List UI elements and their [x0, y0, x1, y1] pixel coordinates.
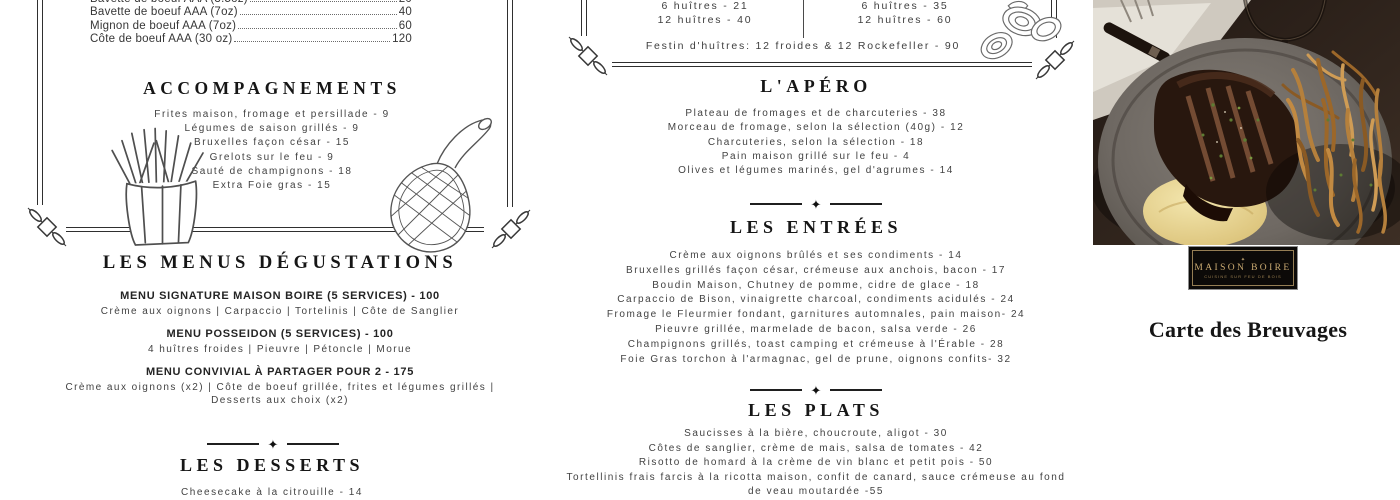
diamond-icon: ✦ — [268, 438, 279, 451]
dotted-leader — [240, 14, 397, 15]
logo-inner-border: ✦ MAISON BOIRE CUISINE SUR FEU DE BOIS — [1192, 250, 1294, 286]
dotted-leader — [250, 1, 397, 2]
frame-left-line — [37, 0, 43, 205]
section-divider: ✦ — [646, 383, 986, 397]
menu-item: Pieuvre grillée, marmelade de bacon, sal… — [560, 323, 1072, 338]
menu-entry-detail: 4 huîtres froides | Pieuvre | Pétoncle |… — [46, 343, 514, 357]
section-divider: ✦ — [646, 197, 986, 211]
menu-item: Olives et légumes marinés, gel d'agrumes… — [566, 164, 1066, 178]
desserts-items: Cheesecake à la citrouille - 14 — [62, 486, 482, 500]
diamond-icon: ✦ — [811, 198, 822, 211]
menu-item: Tortellinis frais farcis à la ricotta ma… — [563, 471, 1069, 500]
menu-item: Champignons grillés, toast camping et cr… — [560, 338, 1072, 353]
menu-item: Plateau de fromages et de charcuteries -… — [566, 107, 1066, 121]
beef-cuts-list: Bavette de boeuf AAA (3.5oz) 20 Bavette … — [90, 0, 412, 47]
festin-huitres-line: Festin d'huîtres: 12 froides & 12 Rockef… — [593, 40, 1013, 52]
divider-line — [287, 443, 339, 445]
beef-cut-row: Côte de boeuf AAA (30 oz) 120 — [90, 33, 412, 46]
menu-entry: MENU POSSEIDON (5 SERVICES) - 100 4 huît… — [46, 328, 514, 357]
divider-line — [830, 203, 882, 205]
menu-entry-detail: Crème aux oignons (x2) | Côte de boeuf g… — [46, 381, 514, 409]
menu-item: Morceau de fromage, selon la sélection (… — [566, 121, 1066, 135]
menu-item: Pain maison grillé sur le feu - 4 — [566, 150, 1066, 164]
beef-cut-name: Mignon de boeuf AAA (7oz) — [90, 20, 236, 33]
divider-line — [750, 203, 802, 205]
section-divider: ✦ — [103, 437, 443, 451]
beef-cut-name: Côte de boeuf AAA (30 oz) — [90, 33, 232, 46]
plats-items: Saucisses à la bière, choucroute, aligot… — [563, 427, 1069, 500]
menu-entry-detail: Crème aux oignons | Carpaccio | Tortelin… — [46, 305, 514, 319]
menu-entry: MENU SIGNATURE MAISON BOIRE (5 SERVICES)… — [46, 290, 514, 319]
dotted-leader — [234, 41, 390, 42]
section-title-apero: L'APÉRO — [616, 77, 1016, 97]
section-title-desserts: LES DESSERTS — [72, 456, 472, 476]
dotted-leader — [238, 28, 396, 29]
menu-item: 12 huîtres - 40 — [615, 14, 795, 28]
divider-line — [830, 389, 882, 391]
oysters-illustration-icon — [970, 0, 1065, 66]
menu-item: 6 huîtres - 21 — [615, 0, 795, 14]
entrees-items: Crème aux oignons brûlés et ses condimen… — [560, 249, 1072, 367]
beef-cut-row: Bavette de boeuf AAA (7oz) 40 — [90, 6, 412, 19]
beef-cut-row: Mignon de boeuf AAA (7oz) 60 — [90, 20, 412, 33]
beef-cut-price: 120 — [392, 33, 412, 46]
oyster-price-column-froides: 6 huîtres - 2112 huîtres - 40 — [615, 0, 795, 27]
menu-entry-heading: MENU POSSEIDON (5 SERVICES) - 100 — [46, 328, 514, 340]
section-title-plats: LES PLATS — [616, 401, 1016, 421]
frame-bottom-line — [612, 62, 1032, 67]
divider-line — [750, 389, 802, 391]
menu-item: Carpaccio de Bison, vinaigrette charcoal… — [560, 293, 1072, 308]
menu-item: Cheesecake à la citrouille - 14 — [62, 486, 482, 500]
menu-item: Foie Gras torchon à l'armagnac, gel de p… — [560, 353, 1072, 368]
menu-item: 6 huîtres - 35 — [815, 0, 995, 14]
frame-corner-ornament-icon — [25, 205, 69, 249]
beef-cut-price: 40 — [399, 6, 412, 19]
menu-item: Crème aux oignons brûlés et ses condimen… — [560, 249, 1072, 264]
menu-item: Côtes de sanglier, crème de mais, salsa … — [563, 442, 1069, 457]
tomahawk-steak-illustration-icon — [375, 108, 510, 258]
logo-ornament-icon: ✦ — [1241, 258, 1245, 262]
section-title-menus-degustations: LES MENUS DÉGUSTATIONS — [80, 253, 480, 273]
fries-illustration-icon — [90, 126, 235, 261]
menu-item: Fromage le Fleurmier fondant, garnitures… — [560, 308, 1072, 323]
apero-items: Plateau de fromages et de charcuteries -… — [566, 107, 1066, 178]
menu-entry-heading: MENU CONVIVIAL À PARTAGER POUR 2 - 175 — [46, 366, 514, 378]
left-menu-panel: Bavette de boeuf AAA (3.5oz) 20 Bavette … — [0, 0, 560, 500]
beef-cut-name: Bavette de boeuf AAA (7oz) — [90, 6, 238, 19]
menu-item: Saucisses à la bière, choucroute, aligot… — [563, 427, 1069, 442]
menus-degustations-entries: MENU SIGNATURE MAISON BOIRE (5 SERVICES)… — [46, 290, 514, 417]
divider-line — [207, 443, 259, 445]
frame-left-line — [581, 0, 587, 36]
menu-item: Charcuteries, selon la sélection - 18 — [566, 136, 1066, 150]
maison-boire-logo: ✦ MAISON BOIRE CUISINE SUR FEU DE BOIS — [1188, 246, 1298, 290]
section-title-entrees: LES ENTRÉES — [616, 218, 1016, 238]
diamond-icon: ✦ — [811, 384, 822, 397]
right-panel: ✦ MAISON BOIRE CUISINE SUR FEU DE BOIS C… — [1093, 0, 1400, 500]
logo-tagline: CUISINE SUR FEU DE BOIS — [1204, 274, 1282, 279]
menu-item: 12 huîtres - 60 — [815, 14, 995, 28]
dish-photo — [1093, 0, 1400, 245]
center-menu-panel: 6 huîtres - 2112 huîtres - 40 6 huîtres … — [560, 0, 1093, 500]
oyster-columns-divider — [803, 0, 804, 38]
menu-item: Bruxelles grillés façon césar, crémeuse … — [560, 264, 1072, 279]
section-title-accompagnements: ACCOMPAGNEMENTS — [72, 79, 472, 98]
beef-cut-price: 60 — [399, 20, 412, 33]
carte-des-breuvages-title: Carte des Breuvages — [1118, 317, 1378, 343]
menu-entry: MENU CONVIVIAL À PARTAGER POUR 2 - 175 C… — [46, 366, 514, 409]
menu-entry-heading: MENU SIGNATURE MAISON BOIRE (5 SERVICES)… — [46, 290, 514, 302]
oyster-price-column-rockefeller: 6 huîtres - 3512 huîtres - 60 — [815, 0, 995, 27]
logo-name: MAISON BOIRE — [1194, 263, 1291, 273]
menu-item: Risotto de homard à la crème de vin blan… — [563, 456, 1069, 471]
menu-item: Boudin Maison, Chutney de pomme, cidre d… — [560, 279, 1072, 294]
